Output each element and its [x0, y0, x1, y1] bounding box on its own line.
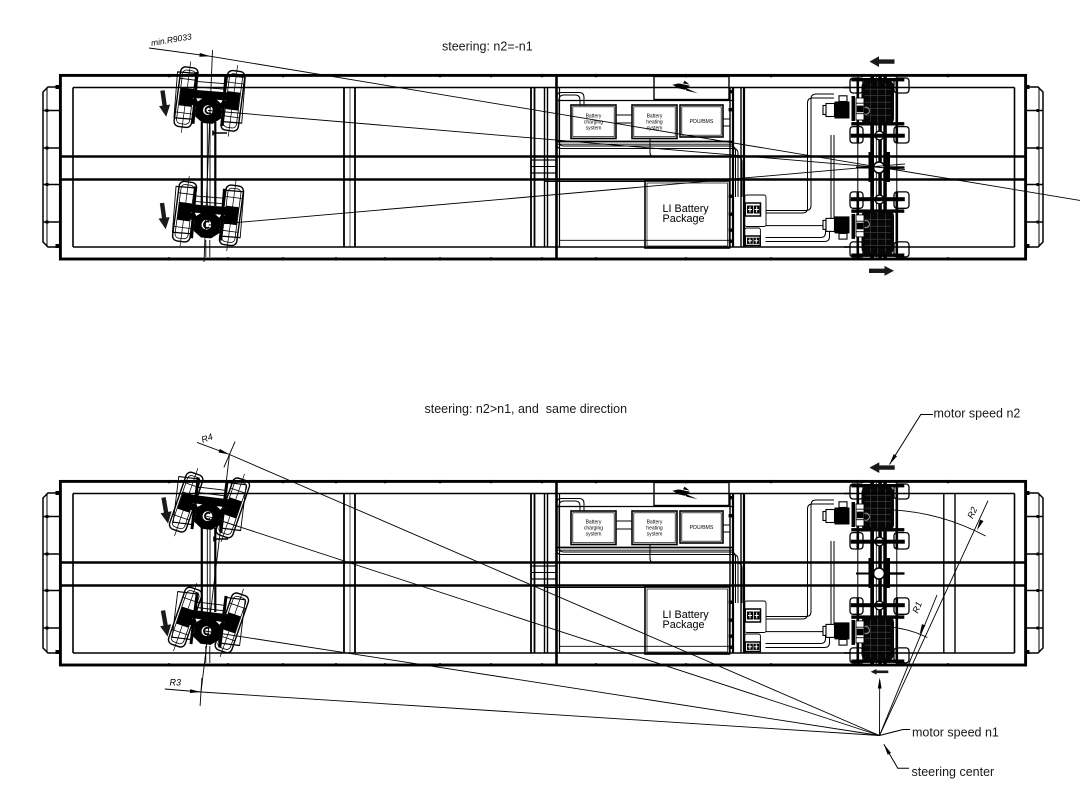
svg-text:steering: n2=-n1: steering: n2=-n1: [442, 40, 533, 54]
svg-text:steering: n2>n1, and same dir: steering: n2>n1, and same direction: [425, 402, 628, 416]
svg-text:steering center: steering center: [912, 765, 995, 779]
svg-text:R3: R3: [170, 677, 182, 687]
svg-text:motor speed n2: motor speed n2: [934, 407, 1021, 421]
svg-text:motor speed n1: motor speed n1: [912, 726, 999, 740]
